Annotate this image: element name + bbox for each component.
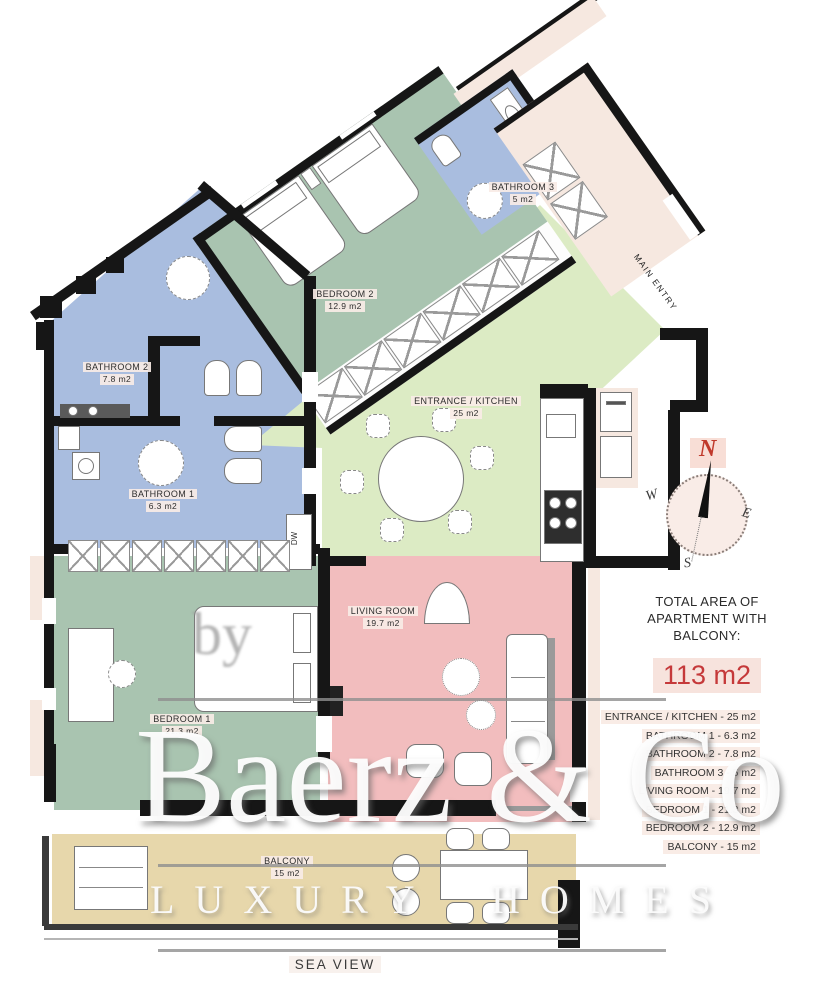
area-list-item: LIVING ROOM - 19.7 m2 <box>556 782 760 801</box>
burner <box>549 497 561 509</box>
area-list-item: BATHROOM 2 - 7.8 m2 <box>556 745 760 764</box>
wall <box>148 336 200 346</box>
chair <box>392 854 420 882</box>
room-label-bedroom1: BEDROOM 1 21.3 m2 <box>132 714 232 738</box>
dining-table <box>378 436 464 522</box>
room-label-kitchen: ENTRANCE / KITCHEN 25 m2 <box>396 396 536 420</box>
total-area-value: 113 m2 <box>653 658 761 693</box>
window <box>42 598 56 624</box>
area-item-text: ENTRANCE / KITCHEN - 25 m2 <box>601 710 760 724</box>
room-label-bathroom1: BATHROOM 1 6.3 m2 <box>113 489 213 513</box>
closet <box>132 540 162 572</box>
area-item-text: BALCONY - 15 m2 <box>663 840 760 854</box>
area-list: ENTRANCE / KITCHEN - 25 m2 BATHROOM 1 - … <box>556 708 760 856</box>
toilet <box>427 131 462 168</box>
toilet <box>224 426 262 452</box>
entry-door-opening <box>663 194 700 240</box>
armchair <box>406 744 444 778</box>
sea-view-text: SEA VIEW <box>289 956 382 973</box>
wall-notch <box>106 257 124 273</box>
pillow <box>293 663 311 703</box>
room-name: BEDROOM 2 <box>313 289 377 299</box>
wall <box>330 556 366 566</box>
area-list-item: BALCONY - 15 m2 <box>556 838 760 857</box>
chair <box>392 888 420 916</box>
sink <box>58 426 80 450</box>
room-area: 15 m2 <box>271 868 303 879</box>
floorplan-page: BEDROOM 2 12.9 m2 BATHROOM 3 5 m2 BATHRO… <box>0 0 826 1000</box>
room-area: 7.8 m2 <box>100 374 134 385</box>
oven <box>600 392 632 432</box>
room-label-balcony: BALCONY 15 m2 <box>237 856 337 880</box>
closet <box>164 540 194 572</box>
room-name: BATHROOM 1 <box>129 489 198 499</box>
sink <box>88 406 98 416</box>
chair <box>446 902 474 924</box>
chair <box>446 828 474 850</box>
area-list-item: BEDROOM 1 - 21.3 m2 <box>556 801 760 820</box>
room-area: 12.9 m2 <box>325 301 365 312</box>
wall <box>44 744 56 802</box>
wall <box>584 388 596 568</box>
area-list-item: BATHROOM 3 - 5 m2 <box>556 764 760 783</box>
pillow <box>317 130 381 183</box>
wall <box>214 416 306 426</box>
area-list-item: BEDROOM 2 - 12.9 m2 <box>556 819 760 838</box>
watermark-line <box>158 698 666 701</box>
chair <box>366 414 390 438</box>
exterior-strip <box>30 700 44 776</box>
watermark-line <box>158 864 666 867</box>
room-label-bathroom3: BATHROOM 3 5 m2 <box>473 182 573 206</box>
chair <box>380 518 404 542</box>
stove <box>544 490 582 544</box>
room-area: 21.3 m2 <box>162 726 202 737</box>
compass-north: N <box>699 436 716 463</box>
oven-handle <box>606 401 626 405</box>
toilet <box>204 360 230 396</box>
closet <box>228 540 258 572</box>
wall <box>540 384 588 398</box>
shower <box>138 440 184 486</box>
lounger-line <box>79 887 143 888</box>
closet <box>196 540 226 572</box>
balcony-rail <box>44 938 578 940</box>
sink-counter <box>60 404 130 418</box>
balcony-table <box>440 850 528 900</box>
sofa-cushion-line <box>511 677 545 678</box>
washing-machine-drum <box>78 458 94 474</box>
wall-notch <box>40 296 62 318</box>
burner <box>565 497 577 509</box>
sea-view-label: SEA VIEW <box>260 956 410 974</box>
closet <box>68 540 98 572</box>
room-name: BATHROOM 2 <box>83 362 152 372</box>
chair <box>482 902 510 924</box>
chair <box>448 510 472 534</box>
area-item-text: LIVING ROOM - 19.7 m2 <box>635 784 760 798</box>
wall <box>584 556 680 568</box>
washing-machine <box>72 452 100 480</box>
compass-south: S <box>683 556 692 573</box>
room-name: BATHROOM 3 <box>489 182 558 192</box>
watermark-line <box>158 949 666 952</box>
lounger-line <box>79 867 143 868</box>
chair <box>340 470 364 494</box>
room-name: BEDROOM 1 <box>150 714 214 724</box>
room-area: 5 m2 <box>510 194 537 205</box>
side-table <box>466 700 496 730</box>
balcony-rail <box>42 836 49 926</box>
burner <box>549 517 561 529</box>
dishwasher-label: DW <box>290 532 299 545</box>
room-name: LIVING ROOM <box>348 606 418 616</box>
room-label-bathroom2: BATHROOM 2 7.8 m2 <box>67 362 167 386</box>
area-list-item: ENTRANCE / KITCHEN - 25 m2 <box>556 708 760 727</box>
wall-notch <box>76 276 96 294</box>
area-item-text: BEDROOM 2 - 12.9 m2 <box>642 821 760 835</box>
room-area: 19.7 m2 <box>363 618 403 629</box>
room-area: 6.3 m2 <box>146 501 180 512</box>
room-name: ENTRANCE / KITCHEN <box>411 396 521 406</box>
burner <box>565 517 577 529</box>
total-area-title: TOTAL AREA OF APARTMENT WITH BALCONY: <box>622 594 792 645</box>
pillow <box>293 613 311 653</box>
room-label-living: LIVING ROOM 19.7 m2 <box>333 606 433 630</box>
coffee-table <box>442 658 480 696</box>
wall <box>44 320 54 748</box>
lounger <box>74 846 148 910</box>
room-label-bedroom2: BEDROOM 2 12.9 m2 <box>295 289 395 313</box>
area-item-text: BATHROOM 2 - 7.8 m2 <box>642 747 760 761</box>
area-item-text: BATHROOM 1 - 6.3 m2 <box>642 729 760 743</box>
desk-chair <box>108 660 136 688</box>
bed <box>194 606 318 712</box>
chair <box>482 828 510 850</box>
sink <box>68 406 78 416</box>
door-opening <box>302 468 318 494</box>
total-area-value-wrap: 113 m2 <box>622 658 792 693</box>
chair <box>470 446 494 470</box>
tv <box>330 686 343 716</box>
fridge <box>600 436 632 478</box>
wall <box>140 800 496 816</box>
room-area: 25 m2 <box>450 408 482 419</box>
area-item-text: BEDROOM 1 - 21.3 m2 <box>642 803 760 817</box>
closet <box>260 540 290 572</box>
bidet <box>236 360 262 396</box>
kitchen-sink <box>546 414 576 438</box>
sofa-cushion-line <box>511 721 545 722</box>
bidet <box>224 458 262 484</box>
compass-west: W <box>644 487 659 505</box>
door-opening <box>316 716 332 752</box>
window <box>42 688 56 710</box>
door-opening <box>302 372 318 402</box>
balcony-rail <box>44 924 578 930</box>
closet <box>100 540 130 572</box>
area-item-text: BATHROOM 3 - 5 m2 <box>651 766 760 780</box>
shower <box>166 256 210 300</box>
armchair <box>454 752 492 786</box>
wardrobe-row <box>68 540 290 572</box>
area-list-item: BATHROOM 1 - 6.3 m2 <box>556 727 760 746</box>
